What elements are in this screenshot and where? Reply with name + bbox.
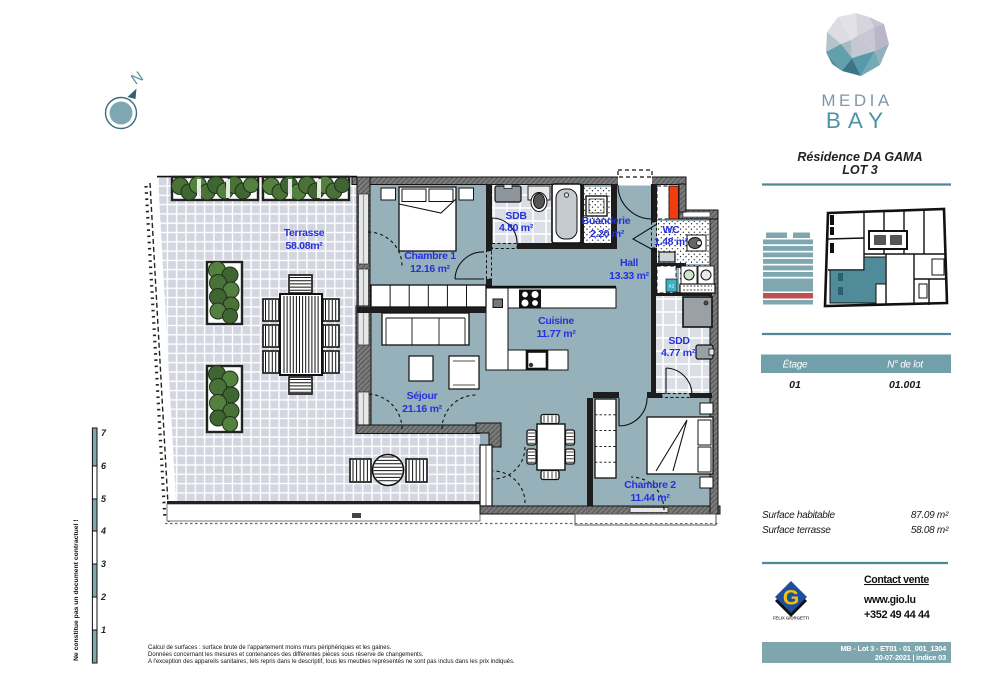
svg-text:Surface habitable: Surface habitable [762,510,835,521]
svg-text:11.77 m²: 11.77 m² [536,328,576,340]
svg-text:12.16 m²: 12.16 m² [410,263,450,275]
svg-text:58.08 m²: 58.08 m² [911,525,949,536]
svg-text:SDB: SDB [505,210,527,222]
svg-text:01.001: 01.001 [889,379,921,391]
svg-text:A l'exception des appareils sa: A l'exception des appareils sanitaires, … [148,659,515,665]
svg-text:Chambre 1: Chambre 1 [404,250,456,262]
svg-text:LOT 3: LOT 3 [842,163,877,177]
svg-text:1: 1 [101,625,106,635]
svg-text:20-07-2021 | indice 03: 20-07-2021 | indice 03 [875,653,946,662]
svg-text:4: 4 [100,526,106,536]
svg-text:11.44 m²: 11.44 m² [630,492,670,504]
svg-text:MB - Lot 3 - ET01 - 01_001_130: MB - Lot 3 - ET01 - 01_001_1304 [840,644,947,653]
svg-text:Étage: Étage [783,358,808,371]
svg-text:FELIX GIORGETTI: FELIX GIORGETTI [773,616,809,621]
svg-text:www.gio.lu: www.gio.lu [863,594,916,606]
svg-text:4.77 m²: 4.77 m² [661,347,696,359]
svg-text:3: 3 [101,559,106,569]
svg-text:Séjour: Séjour [407,390,438,402]
svg-text:2: 2 [100,592,106,602]
svg-text:1.48 m²: 1.48 m² [654,236,689,248]
svg-text:4.80 m²: 4.80 m² [499,222,534,234]
svg-text:58.08m²: 58.08m² [285,240,323,252]
svg-text:+352 49 44 44: +352 49 44 44 [864,609,931,621]
svg-text:Données concernant les mesures: Données concernant les mesures et conten… [148,652,424,658]
svg-text:Hall: Hall [620,257,638,269]
svg-text:Cuisine: Cuisine [538,315,574,327]
svg-text:Calcul de surfaces : surface b: Calcul de surfaces : surface brute de l'… [148,645,392,651]
svg-text:01: 01 [789,379,801,391]
svg-text:Chambre 2: Chambre 2 [624,479,676,491]
svg-text:K2: K2 [669,284,675,289]
svg-text:Ne constitue pas un document c: Ne constitue pas un document contractuel… [73,519,80,661]
svg-text:Terrasse: Terrasse [284,227,325,239]
svg-text:SDD: SDD [668,335,690,347]
svg-text:Résidence DA GAMA: Résidence DA GAMA [797,150,922,164]
svg-text:Surface terrasse: Surface terrasse [762,525,831,536]
svg-text:G: G [783,587,799,610]
svg-text:21.16 m²: 21.16 m² [402,403,442,415]
svg-text:N° de lot: N° de lot [887,360,924,371]
svg-text:2.20 m²: 2.20 m² [590,228,625,240]
svg-text:WC: WC [663,224,681,236]
svg-text:87.09 m²: 87.09 m² [911,510,949,521]
svg-text:Buanderie: Buanderie [582,215,631,227]
svg-text:13.33 m²: 13.33 m² [609,270,649,282]
svg-text:BAY: BAY [826,108,890,133]
svg-text:Contact vente: Contact vente [864,574,929,586]
